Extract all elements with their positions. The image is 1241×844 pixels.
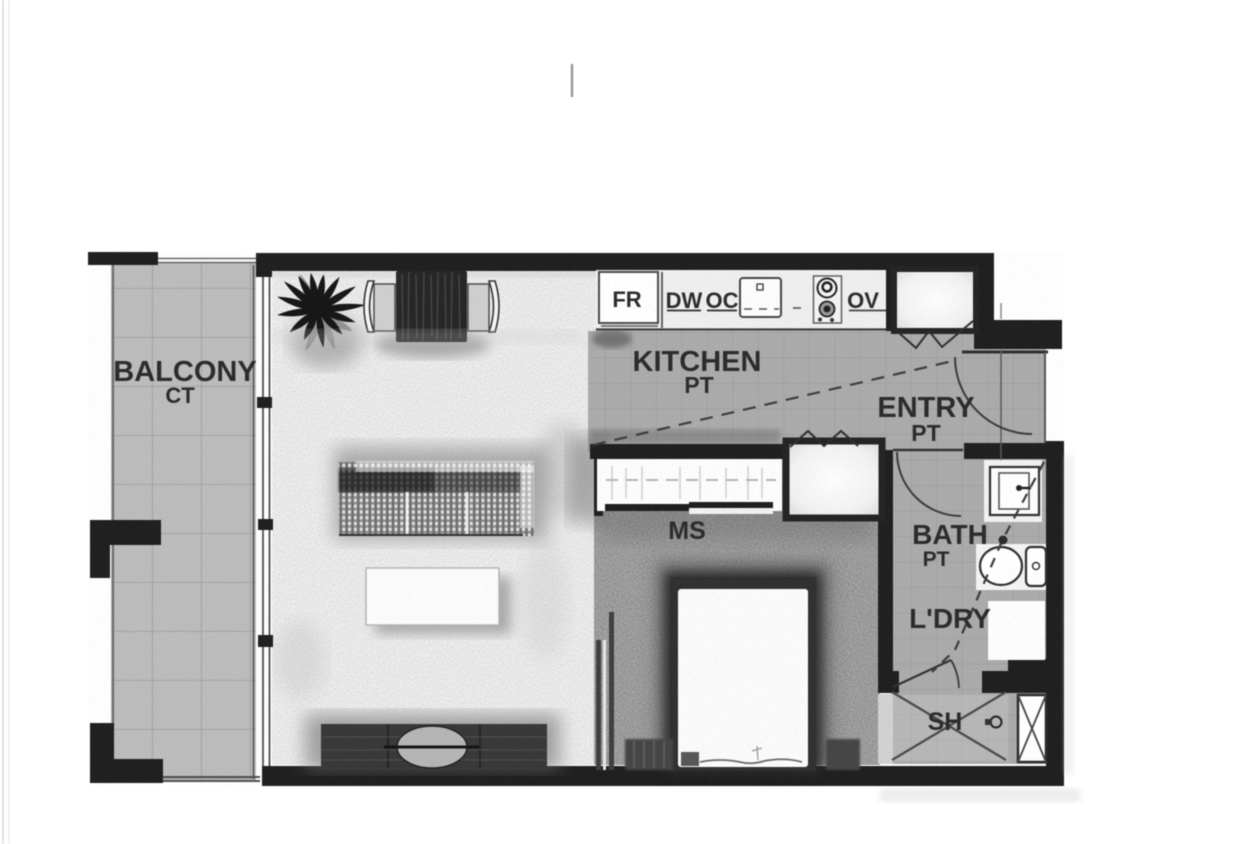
svg-text:OV: OV [847, 288, 879, 313]
svg-text:DW: DW [666, 288, 703, 313]
svg-text:PT: PT [684, 372, 713, 398]
svg-text:BATH: BATH [912, 519, 988, 550]
svg-text:PT: PT [911, 420, 940, 446]
svg-text:L'DRY: L'DRY [909, 603, 991, 634]
svg-text:OC: OC [706, 288, 739, 313]
svg-text:CT: CT [165, 383, 195, 408]
svg-text:FR: FR [612, 287, 641, 312]
svg-text:SH: SH [928, 708, 963, 736]
svg-text:MS: MS [668, 517, 706, 545]
svg-text:PT: PT [923, 548, 950, 571]
